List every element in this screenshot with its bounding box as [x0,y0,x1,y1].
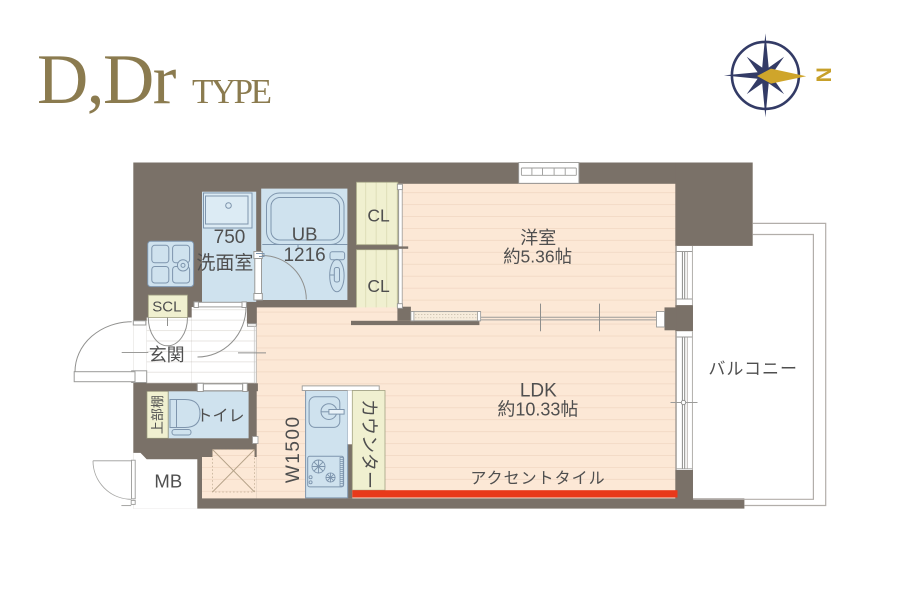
svg-text:SCL: SCL [152,299,181,316]
svg-text:上部棚: 上部棚 [150,395,165,434]
svg-text:バルコニー: バルコニー [708,360,798,379]
svg-text:CL: CL [367,276,390,296]
svg-text:LDK: LDK [520,381,557,402]
svg-text:アクセントタイル: アクセントタイル [470,470,605,488]
svg-text:カウンター: カウンター [359,399,379,489]
svg-text:トイレ: トイレ [196,408,244,425]
svg-text:洋室: 洋室 [520,228,556,248]
svg-text:W1500: W1500 [283,415,304,483]
svg-text:MB: MB [154,471,182,492]
svg-text:玄関: 玄関 [149,345,185,365]
svg-text:750: 750 [214,227,246,248]
svg-text:1216: 1216 [283,245,325,266]
svg-text:UB: UB [292,224,318,245]
svg-text:約5.36帖: 約5.36帖 [503,247,572,267]
svg-text:洗面室: 洗面室 [196,252,253,274]
svg-text:CL: CL [367,206,390,226]
svg-text:N: N [812,67,835,82]
svg-text:約10.33帖: 約10.33帖 [497,400,578,420]
